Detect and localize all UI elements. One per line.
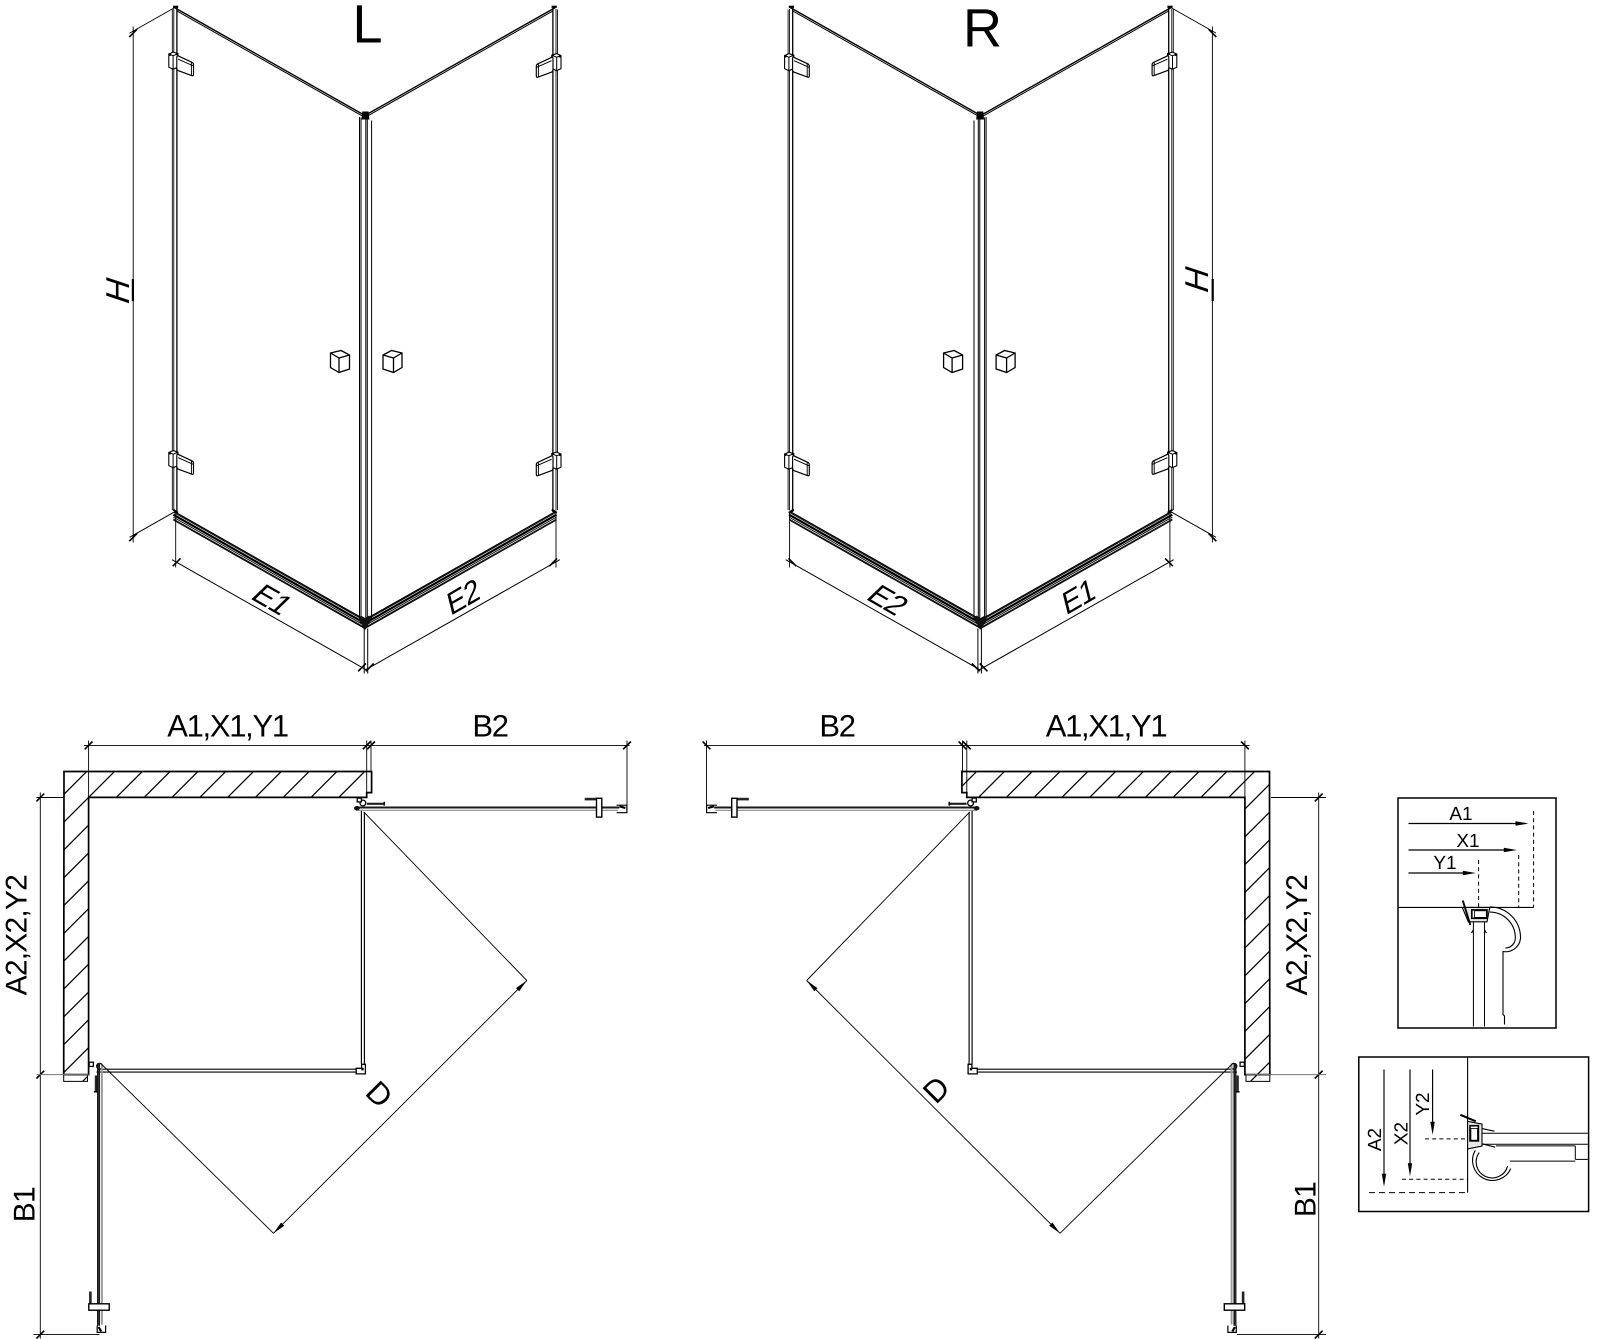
- svg-text:D: D: [916, 1070, 956, 1110]
- svg-text:A2,X2,Y2: A2,X2,Y2: [1, 875, 34, 995]
- svg-text:R: R: [963, 0, 1002, 59]
- svg-text:B2: B2: [819, 709, 854, 744]
- svg-text:H: H: [99, 276, 136, 305]
- svg-text:A1: A1: [1449, 804, 1472, 825]
- svg-text:H: H: [1178, 265, 1215, 294]
- svg-text:B1: B1: [9, 1187, 42, 1222]
- svg-text:Y2: Y2: [1413, 1092, 1434, 1115]
- svg-text:X2: X2: [1392, 1122, 1413, 1145]
- svg-text:X1: X1: [1456, 831, 1479, 852]
- svg-text:A2: A2: [1365, 1128, 1386, 1151]
- svg-text:A2,X2,Y2: A2,X2,Y2: [1281, 875, 1314, 995]
- svg-text:Y1: Y1: [1433, 853, 1456, 874]
- svg-text:A1,X1,Y1: A1,X1,Y1: [1046, 709, 1167, 744]
- svg-text:B1: B1: [1290, 1182, 1323, 1217]
- svg-text:D: D: [359, 1074, 399, 1114]
- svg-text:A1,X1,Y1: A1,X1,Y1: [167, 709, 288, 744]
- svg-text:L: L: [352, 0, 382, 55]
- svg-text:B2: B2: [472, 709, 507, 744]
